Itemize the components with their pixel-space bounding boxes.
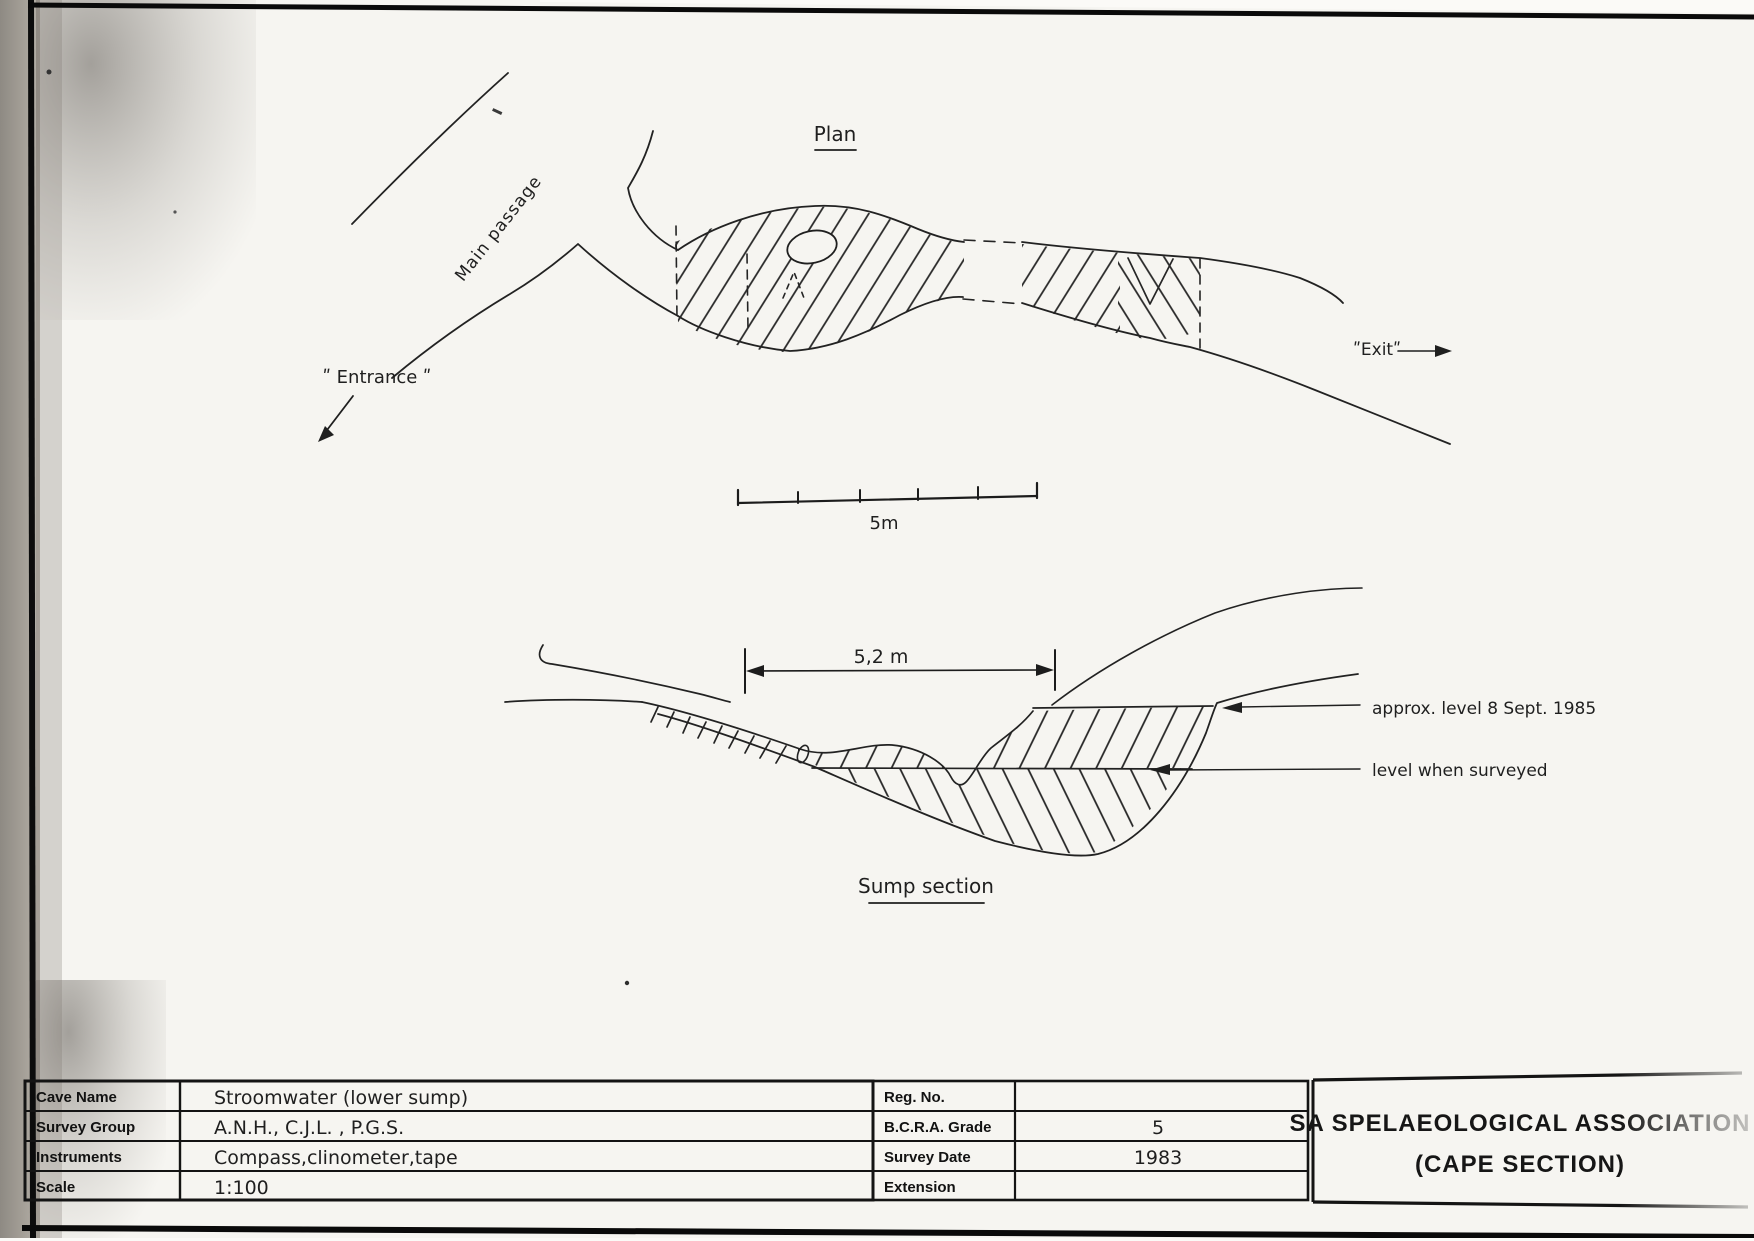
scan-left-smudge (36, 0, 62, 1241)
meta-label: Reg. No. (884, 1089, 945, 1106)
field-label: Cave Name (36, 1089, 117, 1106)
scan-speck (173, 210, 176, 213)
surveyed-level-line (812, 768, 1192, 769)
scanned-survey-sheet: Plan Main passage (0, 0, 1754, 1241)
meta-label: Extension (884, 1179, 956, 1196)
scan-speck (47, 70, 52, 75)
field-value: Compass,clinometer,tape (214, 1147, 458, 1169)
entrance-label: ʺ Entrance ʺ (323, 367, 432, 388)
sump-section-title: Sump section (858, 874, 994, 898)
paper-background (0, 0, 1754, 1241)
scan-right-fade (1620, 1060, 1754, 1220)
scale-bar-label: 5m (870, 513, 899, 534)
survey-drawing: Plan Main passage (0, 0, 1754, 1241)
field-label: Instruments (36, 1149, 122, 1166)
meta-value: 1983 (1134, 1147, 1182, 1169)
field-value: Stroomwater (lower sump) (214, 1087, 468, 1109)
field-value: 1:100 (214, 1177, 269, 1199)
scan-left-edge-line (31, 0, 33, 1241)
approx-level-label: approx. level 8 Sept. 1985 (1372, 699, 1596, 719)
field-value: A.N.H., C.J.L. , P.G.S. (214, 1117, 404, 1139)
meta-value: 5 (1152, 1117, 1164, 1139)
scan-corner-shadow (36, 0, 256, 320)
section-width-label: 5,2 m (854, 646, 909, 668)
meta-label: B.C.R.A. Grade (884, 1119, 992, 1136)
meta-label: Survey Date (884, 1149, 971, 1166)
exit-label: ʺExitʺ (1353, 340, 1401, 360)
field-label: Scale (36, 1179, 75, 1196)
field-label: Survey Group (36, 1119, 135, 1136)
surveyed-level-label: level when surveyed (1372, 761, 1548, 781)
scan-artifacts (0, 0, 1754, 1241)
scan-speck (625, 981, 629, 985)
organization-section: (CAPE SECTION) (1415, 1151, 1625, 1178)
plan-title: Plan (814, 122, 857, 146)
